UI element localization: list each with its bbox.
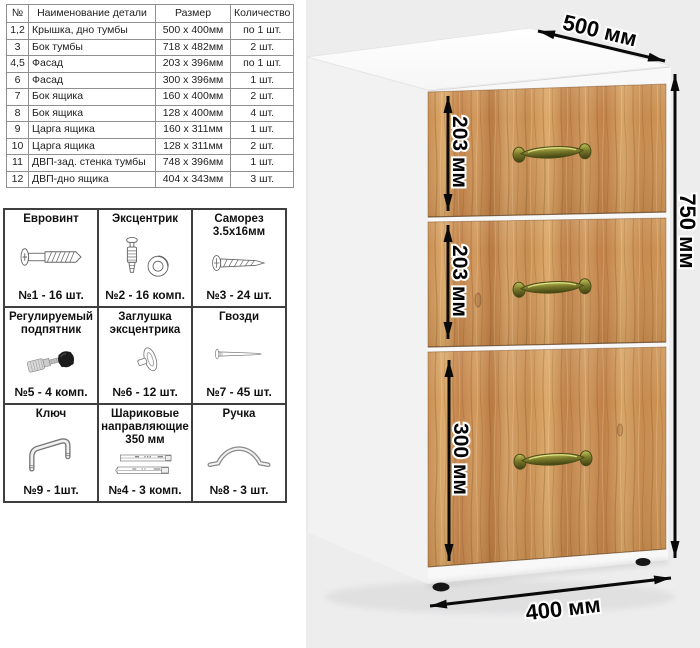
part-size: 404 x 343мм bbox=[156, 171, 231, 188]
hardware-title: Шариковые направляющие 350 мм bbox=[101, 408, 189, 447]
hardware-title: Заглушка эксцентрика bbox=[101, 311, 189, 337]
part-name: Фасад bbox=[29, 56, 156, 73]
hardware-cell-eurovint: Евровинт №1 - 16 шт. bbox=[5, 210, 97, 306]
hardware-grid: Евровинт №1 - 16 шт. Эксцентрик bbox=[3, 208, 287, 503]
hardware-count: №8 - 3 шт. bbox=[210, 483, 269, 497]
part-name: Бок ящика bbox=[29, 89, 156, 106]
adjustable-foot-icon bbox=[11, 336, 91, 385]
part-num: 6 bbox=[7, 72, 29, 89]
part-size: 160 x 400мм bbox=[156, 89, 231, 106]
part-num: 11 bbox=[7, 155, 29, 172]
part-qty: 2 шт. bbox=[231, 89, 294, 106]
part-name: ДВП-зад. стенка тумбы bbox=[29, 155, 156, 172]
part-num: 10 bbox=[7, 138, 29, 155]
part-size: 128 x 400мм bbox=[156, 105, 231, 122]
cabinet-foot-left bbox=[433, 583, 450, 592]
hardware-cell-gvozdi: Гвозди №7 - 45 шт. bbox=[193, 308, 285, 404]
parts-table-header: № Наименование детали Размер Количество bbox=[7, 5, 294, 23]
cabinet-foot-right bbox=[636, 558, 651, 566]
hardware-cell-klyuch: Ключ №9 - 1шт. bbox=[5, 405, 97, 501]
part-qty: 1 шт. bbox=[231, 72, 294, 89]
part-qty: 2 шт. bbox=[231, 138, 294, 155]
table-row: 3Бок тумбы718 x 482мм2 шт. bbox=[7, 39, 294, 56]
part-num: 4,5 bbox=[7, 56, 29, 73]
hardware-count: №7 - 45 шт. bbox=[206, 385, 272, 399]
eccentric-cam-icon bbox=[103, 226, 187, 288]
hex-key-icon bbox=[11, 421, 91, 483]
table-row: 11ДВП-зад. стенка тумбы748 x 396мм1 шт. bbox=[7, 155, 294, 172]
hardware-cell-samorez: Саморез 3.5х16мм №3 - 24 шт. bbox=[193, 210, 285, 306]
hardware-title: Регулируемый подпятник bbox=[7, 311, 95, 337]
hardware-count: №1 - 16 шт. bbox=[18, 288, 84, 302]
part-size: 500 x 400мм bbox=[156, 23, 231, 40]
hardware-count: №3 - 24 шт. bbox=[206, 288, 272, 302]
hardware-cell-ruchka: Ручка №8 - 3 шт. bbox=[193, 405, 285, 501]
table-row: 9Царга ящика160 x 311мм1 шт. bbox=[7, 122, 294, 139]
hardware-title: Эксцентрик bbox=[112, 213, 178, 226]
part-size: 300 x 396мм bbox=[156, 72, 231, 89]
hardware-title: Саморез 3.5х16мм bbox=[195, 213, 283, 239]
ball-slides-icon bbox=[103, 447, 187, 483]
part-qty: 3 шт. bbox=[231, 171, 294, 188]
dim-label-drawer-3: 300 мм bbox=[449, 423, 472, 495]
part-name: Фасад bbox=[29, 72, 156, 89]
part-size: 203 x 396мм bbox=[156, 56, 231, 73]
hardware-cell-napravlyayushchie: Шариковые направляющие 350 мм №4 - 3 ком… bbox=[99, 405, 191, 501]
part-qty: 1 шт. bbox=[231, 155, 294, 172]
table-row: 10Царга ящика128 x 311мм2 шт. bbox=[7, 138, 294, 155]
part-num: 9 bbox=[7, 122, 29, 139]
hardware-title: Гвозди bbox=[219, 311, 259, 324]
hardware-count: №4 - 3 комп. bbox=[108, 483, 181, 497]
part-name: Крышка, дно тумбы bbox=[29, 23, 156, 40]
table-row: 8Бок ящика128 x 400мм4 шт. bbox=[7, 105, 294, 122]
nail-icon bbox=[197, 324, 281, 386]
cam-cap-icon bbox=[105, 336, 185, 385]
part-num: 8 bbox=[7, 105, 29, 122]
col-header-name: Наименование детали bbox=[29, 5, 156, 23]
self-tapping-screw-icon bbox=[197, 239, 281, 288]
part-num: 1,2 bbox=[7, 23, 29, 40]
part-name: Бок тумбы bbox=[29, 39, 156, 56]
col-header-num: № bbox=[7, 5, 29, 23]
assembly-sheet: 500 мм 750 мм 400 мм 203 мм 203 мм 300 м… bbox=[0, 0, 700, 648]
parts-table: № Наименование детали Размер Количество … bbox=[6, 4, 294, 188]
part-size: 748 x 396мм bbox=[156, 155, 231, 172]
part-name: Царга ящика bbox=[29, 138, 156, 155]
hardware-count: №2 - 16 комп. bbox=[105, 288, 185, 302]
part-name: Царга ящика bbox=[29, 122, 156, 139]
cabinet-side-panel bbox=[307, 57, 428, 584]
table-row: 12ДВП-дно ящика404 x 343мм3 шт. bbox=[7, 171, 294, 188]
table-row: 7Бок ящика160 x 400мм2 шт. bbox=[7, 89, 294, 106]
part-name: Бок ящика bbox=[29, 105, 156, 122]
table-row: 1,2Крышка, дно тумбы500 x 400ммпо 1 шт. bbox=[7, 23, 294, 40]
hardware-title: Евровинт bbox=[23, 213, 79, 226]
hardware-cell-eccentric: Эксцентрик №2 - 16 комп. bbox=[99, 210, 191, 306]
hardware-title: Ручка bbox=[223, 408, 256, 421]
dim-label-drawer-2: 203 мм bbox=[448, 245, 471, 317]
dim-label-drawer-1: 203 мм bbox=[448, 116, 471, 188]
col-header-qty: Количество bbox=[231, 5, 294, 23]
hardware-count: №5 - 4 комп. bbox=[14, 385, 87, 399]
table-row: 4,5Фасад203 x 396ммпо 1 шт. bbox=[7, 56, 294, 73]
euro-screw-icon bbox=[9, 226, 93, 288]
hardware-cell-zaglushka: Заглушка эксцентрика №6 - 12 шт. bbox=[99, 308, 191, 404]
part-size: 160 x 311мм bbox=[156, 122, 231, 139]
part-qty: по 1 шт. bbox=[231, 56, 294, 73]
part-num: 3 bbox=[7, 39, 29, 56]
dim-label-750: 750 мм bbox=[675, 193, 700, 268]
part-qty: 1 шт. bbox=[231, 122, 294, 139]
part-qty: 2 шт. bbox=[231, 39, 294, 56]
hardware-count: №6 - 12 шт. bbox=[112, 385, 178, 399]
hardware-cell-podpyatnik: Регулируемый подпятник bbox=[5, 308, 97, 404]
part-num: 7 bbox=[7, 89, 29, 106]
handle-icon bbox=[199, 421, 279, 483]
part-name: ДВП-дно ящика bbox=[29, 171, 156, 188]
table-row: 6Фасад300 x 396мм1 шт. bbox=[7, 72, 294, 89]
part-num: 12 bbox=[7, 171, 29, 188]
part-qty: 4 шт. bbox=[231, 105, 294, 122]
part-size: 128 x 311мм bbox=[156, 138, 231, 155]
hardware-title: Ключ bbox=[36, 408, 66, 421]
part-size: 718 x 482мм bbox=[156, 39, 231, 56]
col-header-size: Размер bbox=[156, 5, 231, 23]
part-qty: по 1 шт. bbox=[231, 23, 294, 40]
hardware-count: №9 - 1шт. bbox=[23, 483, 79, 497]
